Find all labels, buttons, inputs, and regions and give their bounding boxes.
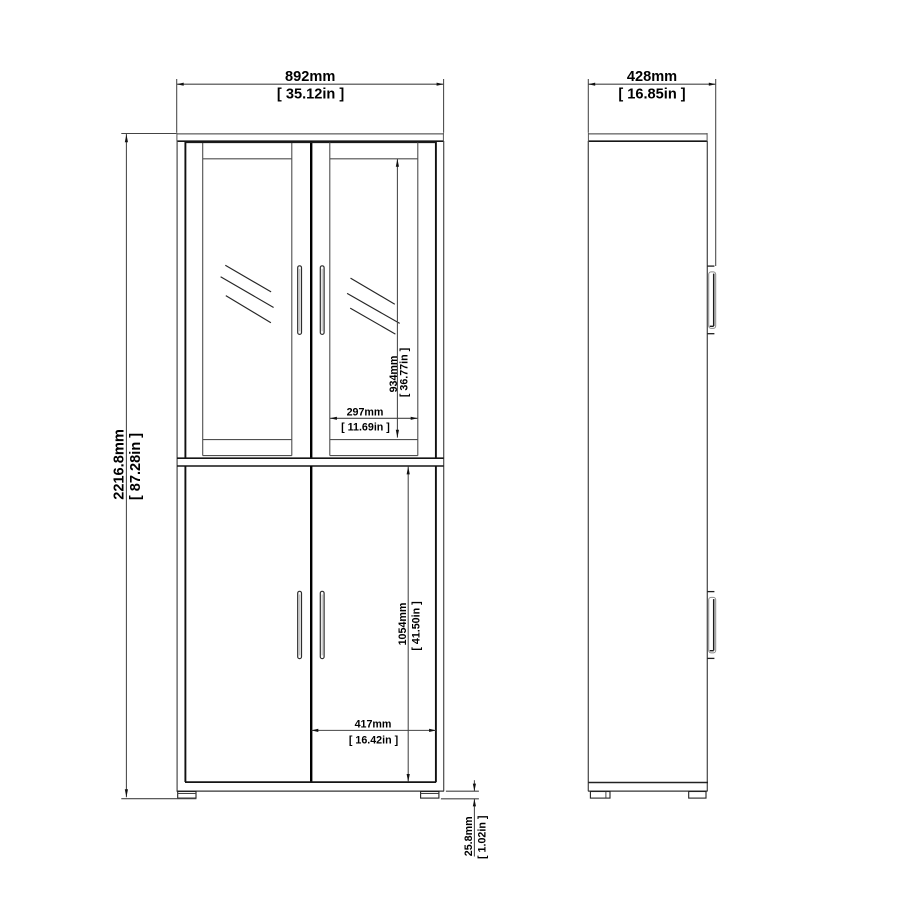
svg-text:[ 41.50in ]: [ 41.50in ] [411,601,423,650]
svg-text:[ 11.69in ]: [ 11.69in ] [341,422,390,434]
svg-text:428mm: 428mm [627,69,677,85]
svg-text:1054mm: 1054mm [397,603,409,646]
svg-text:417mm: 417mm [355,719,392,731]
svg-text:[ 1.02in ]: [ 1.02in ] [476,816,488,859]
svg-text:[ 87.28in ]: [ 87.28in ] [128,433,144,500]
svg-text:[ 16.85in ]: [ 16.85in ] [618,86,685,102]
svg-text:25.8mm: 25.8mm [463,816,475,856]
svg-text:892mm: 892mm [285,69,335,85]
svg-text:297mm: 297mm [347,407,384,419]
svg-text:2216.8mm: 2216.8mm [111,429,127,500]
svg-text:[ 36.77in ]: [ 36.77in ] [399,348,411,397]
svg-text:[ 35.12in ]: [ 35.12in ] [277,86,344,102]
svg-text:[ 16.42in ]: [ 16.42in ] [349,734,398,746]
